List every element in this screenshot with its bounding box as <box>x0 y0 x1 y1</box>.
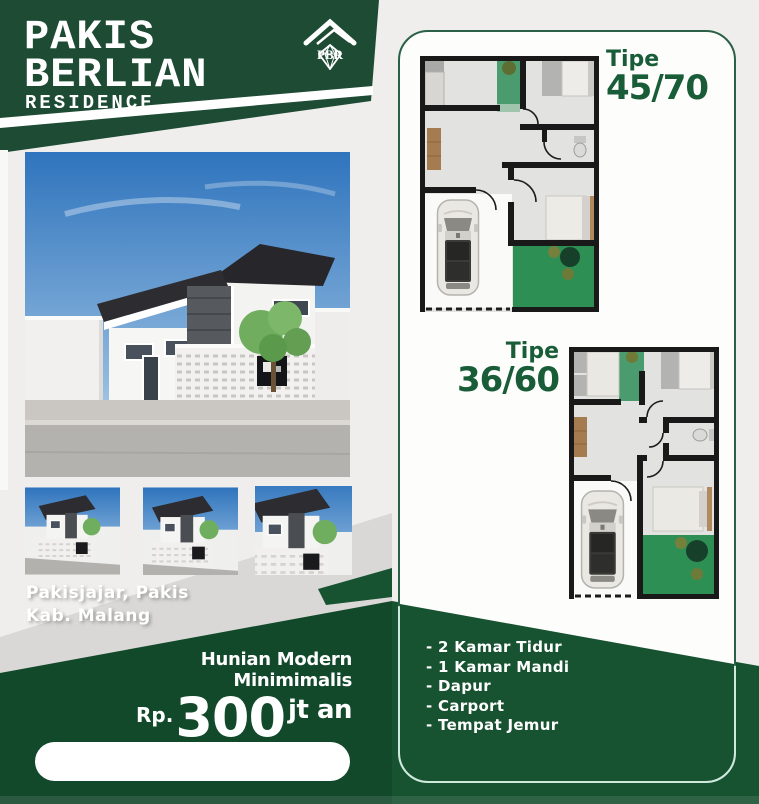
feature-item: - 1 Kamar Mandi <box>426 658 569 678</box>
house-render-photo <box>25 152 350 477</box>
floorplan-panel: Tipe 45/70 Tipe 36/60 <box>398 30 736 783</box>
offer-headline: Hunian Modern Minimimalis <box>90 649 352 691</box>
logo-text: PBR <box>317 47 344 62</box>
brand-name-line2: BERLIAN <box>24 54 207 96</box>
feature-item: - Carport <box>426 697 569 717</box>
car-icon <box>438 200 479 295</box>
price-unit: jt an <box>288 695 352 725</box>
floorplan-45-70 <box>420 56 599 312</box>
brand-tagline: RESIDENCE <box>25 92 155 114</box>
price-currency: Rp. <box>136 703 173 727</box>
bottom-highlight-strip <box>0 796 759 804</box>
thumbnail-photo-2 <box>143 487 238 575</box>
contact-pill <box>35 742 350 781</box>
plan-45-70-label: Tipe 45/70 <box>606 48 708 107</box>
plan-36-60-label: Tipe 36/60 <box>420 340 559 399</box>
price-amount: 300 <box>175 693 285 743</box>
car-icon <box>582 491 624 588</box>
thumbnail-photo-1 <box>25 487 120 575</box>
location-line2: Kab. Malang <box>26 605 189 628</box>
feature-item: - Tempat Jemur <box>426 716 569 736</box>
offer-block: Hunian Modern Minimimalis Rp. 300 jt an <box>90 649 352 743</box>
feature-list: - 2 Kamar Tidur - 1 Kamar Mandi - Dapur … <box>426 638 569 736</box>
flyer-page: PAKIS BERLIAN RESIDENCE PBR <box>0 0 759 804</box>
left-margin-strip <box>0 150 8 490</box>
house-roof-icon <box>306 22 354 44</box>
price-row: Rp. 300 jt an <box>90 693 352 743</box>
plan-type-size: 36/60 <box>420 363 559 399</box>
pbr-logo: PBR <box>300 12 360 70</box>
location-text: Pakisjajar, Pakis Kab. Malang <box>26 582 189 628</box>
feature-item: - 2 Kamar Tidur <box>426 638 569 658</box>
plan-type-size: 45/70 <box>606 71 708 107</box>
floorplan-36-60 <box>569 347 719 599</box>
location-line1: Pakisjajar, Pakis <box>26 582 189 605</box>
feature-item: - Dapur <box>426 677 569 697</box>
thumbnail-photo-3 <box>255 486 352 575</box>
